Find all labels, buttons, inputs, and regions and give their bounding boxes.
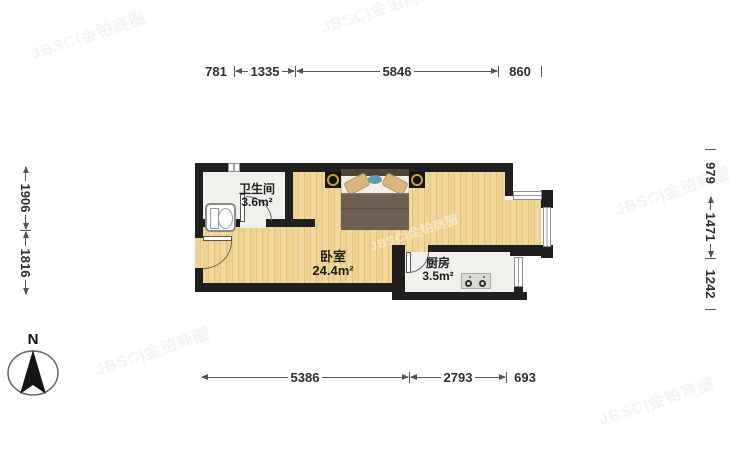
bay-window-floor xyxy=(505,200,541,246)
dim-arrow-right-icon xyxy=(402,374,409,380)
watermark-text: JBSC|金铂商圈 xyxy=(595,370,717,430)
bathroom-window xyxy=(228,163,240,172)
dimension-segment: 5386 xyxy=(201,368,409,386)
dimension-segment: 1816 xyxy=(17,231,35,295)
dimension-segment: 1335 xyxy=(235,62,295,80)
dimension-value: 979 xyxy=(704,159,719,187)
dim-arrow-right-icon xyxy=(499,374,506,380)
dim-arrow-down-icon xyxy=(23,288,29,295)
dim-arrow-left-icon xyxy=(296,68,303,74)
watermark-text: JBSC|金铂商圈 xyxy=(27,4,149,64)
room-label-bedroom: 卧室 24.4m² xyxy=(298,250,368,279)
dimension-column-right: 979 1471 1242 xyxy=(702,149,720,311)
nightstand-right xyxy=(409,172,425,188)
dimension-value: 781 xyxy=(202,64,230,79)
wall-bathroom-bottom-right xyxy=(266,219,315,227)
toilet-bowl xyxy=(218,208,233,229)
kitchen-window xyxy=(514,257,523,287)
dim-arrow-down-icon xyxy=(23,223,29,230)
room-area: 24.4m² xyxy=(298,264,368,278)
dim-arrow-up-icon xyxy=(23,166,29,173)
bay-corner-post-top xyxy=(541,190,553,208)
dimension-value: 860 xyxy=(506,64,534,79)
wall-east-upper xyxy=(505,163,513,196)
compass-north-label: N xyxy=(6,332,60,348)
stove-burner xyxy=(479,280,486,287)
dimension-segment: 860 xyxy=(499,62,541,80)
stove-knob xyxy=(483,276,485,278)
wall-bottom-bedroom xyxy=(195,283,405,292)
bay-window-right xyxy=(543,207,551,247)
dimension-value: 2793 xyxy=(441,370,476,385)
dimension-segment: 979 xyxy=(702,150,720,196)
dim-arrow-down-icon xyxy=(708,251,714,258)
dimension-value: 1816 xyxy=(19,246,34,281)
wall-kitchen-left xyxy=(392,245,405,292)
watermark-text: JBSC|金铂商圈 xyxy=(91,320,213,380)
compass: N xyxy=(6,332,60,402)
dimension-value: 5846 xyxy=(380,64,415,79)
dimension-value: 1242 xyxy=(704,267,719,302)
watermark-text: JBSC|金铂商圈 xyxy=(317,0,439,38)
room-area: 3.5m² xyxy=(405,270,471,283)
wall-kitchen-top xyxy=(428,245,514,252)
dimension-value: 1335 xyxy=(248,64,283,79)
wall-kitchen-right-lower xyxy=(514,285,523,300)
dimension-segment: 1471 xyxy=(702,196,720,258)
room-label-kitchen: 厨房 3.5m² xyxy=(405,257,471,283)
dim-arrow-left-icon xyxy=(201,374,208,380)
wall-bay-to-kitchen xyxy=(510,245,543,256)
dimension-value: 1471 xyxy=(704,210,719,245)
lamp-icon xyxy=(327,174,339,186)
entry-threshold xyxy=(195,238,203,268)
dimension-segment: 2793 xyxy=(410,368,506,386)
lamp-icon xyxy=(411,174,423,186)
wall-bottom-kitchen xyxy=(392,292,527,300)
dim-arrow-right-icon xyxy=(288,68,295,74)
pillow-blue xyxy=(368,175,382,184)
dimension-row-bottom: 5386 2793 693 xyxy=(201,368,543,386)
dimension-segment: 5846 xyxy=(296,62,498,80)
dim-arrow-up-icon xyxy=(23,231,29,238)
dimension-value: 5386 xyxy=(288,370,323,385)
dimension-segment: 1242 xyxy=(702,259,720,309)
floor-plan-page: JBSC|金铂商圈 JBSC|金铂商圈 JBSC|金铂商圈 JBSC|金铂商圈 … xyxy=(0,0,746,460)
dimension-tick xyxy=(541,66,542,77)
dim-arrow-right-icon xyxy=(491,68,498,74)
dimension-value: 693 xyxy=(511,370,539,385)
blanket-fold xyxy=(341,208,409,209)
dim-arrow-up-icon xyxy=(708,196,714,203)
compass-icon xyxy=(6,348,60,398)
dimension-segment: 1906 xyxy=(17,166,35,230)
room-name: 卧室 xyxy=(298,250,368,264)
dimension-value: 1906 xyxy=(19,181,34,216)
dimension-segment: 781 xyxy=(198,62,234,80)
dimension-tick xyxy=(706,309,717,310)
nightstand-left xyxy=(325,172,341,188)
dimension-row-top: 781 1335 5846 860 xyxy=(198,62,542,80)
room-label-bathroom: 卫生间 3.6m² xyxy=(222,183,292,209)
dim-arrow-left-icon xyxy=(235,68,242,74)
room-area: 3.6m² xyxy=(222,196,292,209)
dimension-column-left: 1906 1816 xyxy=(17,166,35,296)
dim-arrow-left-icon xyxy=(410,374,417,380)
bed-blanket xyxy=(341,193,409,230)
bay-window-top xyxy=(513,191,542,200)
dimension-segment: 693 xyxy=(507,368,543,386)
